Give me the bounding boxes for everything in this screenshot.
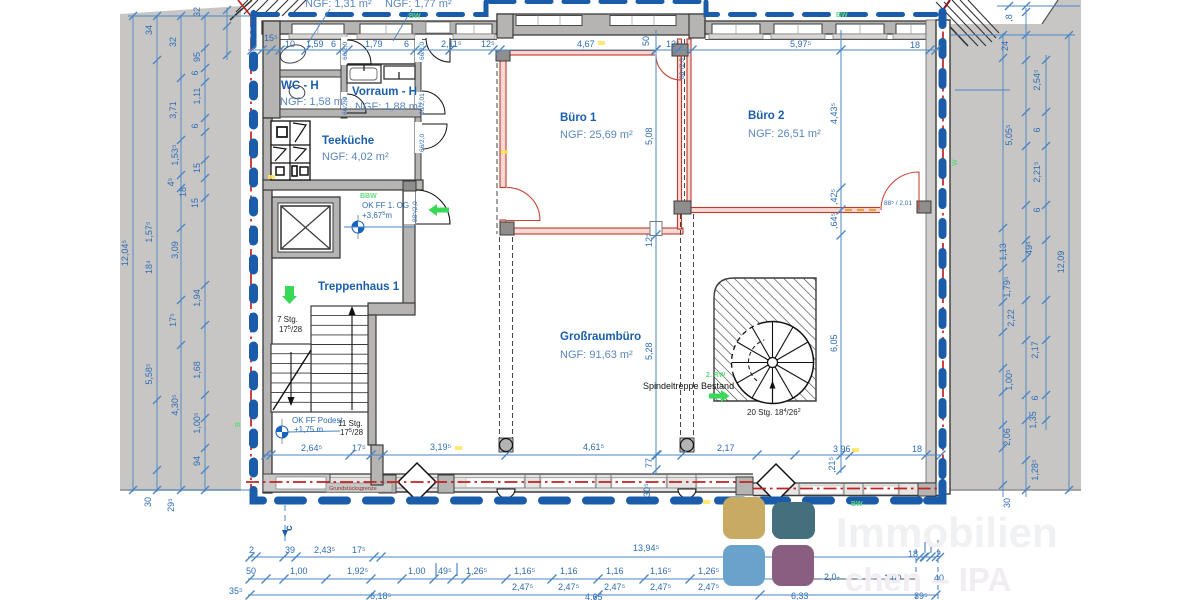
svg-text:66/2,0: 66/2,0 <box>419 42 426 60</box>
svg-text:OK FF 1. OG: OK FF 1. OG <box>362 201 409 210</box>
svg-text:NGF: 4,02 m²: NGF: 4,02 m² <box>322 151 389 163</box>
svg-text:3,09: 3,09 <box>170 241 180 259</box>
svg-text:1,00: 1,00 <box>408 566 426 576</box>
svg-text:34: 34 <box>144 25 154 35</box>
svg-text:5,28: 5,28 <box>644 342 654 360</box>
svg-text:94: 94 <box>192 456 202 466</box>
svg-text:35⁵: 35⁵ <box>229 586 243 596</box>
svg-text:W: W <box>952 159 959 166</box>
svg-text:Büro 2: Büro 2 <box>748 110 784 122</box>
svg-text:Vorraum - H: Vorraum - H <box>352 86 417 98</box>
svg-text:10: 10 <box>285 39 295 49</box>
svg-text:2. RW: 2. RW <box>706 372 726 379</box>
svg-text:NGF: 91,63 m²: NGF: 91,63 m² <box>560 349 633 361</box>
svg-text:15⁵: 15⁵ <box>264 33 278 43</box>
svg-text:OK FF Podest: OK FF Podest <box>292 416 343 425</box>
svg-text:1,00⁵: 1,00⁵ <box>192 412 202 434</box>
svg-text:88⁵/2,0: 88⁵/2,0 <box>679 58 686 79</box>
svg-text:17⁵: 17⁵ <box>168 313 178 327</box>
svg-text:1,16: 1,16 <box>560 566 578 576</box>
svg-text:Teeküche: Teeküche <box>322 135 374 147</box>
svg-text:4,67: 4,67 <box>577 39 595 49</box>
svg-text:,42⁵: ,42⁵ <box>829 188 839 205</box>
svg-text:5,05⁵: 5,05⁵ <box>1004 124 1014 146</box>
svg-text:NGF: 26,51 m²: NGF: 26,51 m² <box>748 128 821 140</box>
svg-text:Büro 1: Büro 1 <box>560 112 597 124</box>
svg-text:29⁵: 29⁵ <box>166 498 176 512</box>
svg-text:2,11⁵: 2,11⁵ <box>441 39 462 49</box>
svg-text:2: 2 <box>249 545 254 555</box>
svg-text:NGF: 25,69 m²: NGF: 25,69 m² <box>560 129 633 141</box>
svg-text:1,16⁵: 1,16⁵ <box>514 566 536 576</box>
svg-text:NGF: 1,77 m²: NGF: 1,77 m² <box>385 0 452 10</box>
svg-text:BW: BW <box>836 12 848 19</box>
svg-text:49⁵: 49⁵ <box>1024 241 1034 255</box>
svg-text:NGF: 1,58 m²: NGF: 1,58 m² <box>280 96 347 108</box>
svg-text:4,61⁵: 4,61⁵ <box>583 442 605 452</box>
svg-text:18: 18 <box>178 187 188 197</box>
svg-text:1,53⁵: 1,53⁵ <box>170 144 180 166</box>
svg-text:1,68: 1,68 <box>192 361 202 379</box>
svg-text:1,16⁵: 1,16⁵ <box>650 566 672 576</box>
svg-text:chen – IPA: chen – IPA <box>845 561 1011 598</box>
svg-text:,64⁵: ,64⁵ <box>829 212 839 229</box>
svg-text:175/28: 175/28 <box>279 325 303 334</box>
svg-text:88⁵/2,0: 88⁵/2,0 <box>412 201 419 222</box>
svg-text:2,17: 2,17 <box>717 443 735 453</box>
svg-text:BW: BW <box>851 501 863 508</box>
svg-text:3,19⁵: 3,19⁵ <box>430 442 452 452</box>
svg-text:15: 15 <box>192 163 202 173</box>
svg-text:,21⁵: ,21⁵ <box>827 456 837 473</box>
svg-text:20 Stg. 184/262: 20 Stg. 184/262 <box>747 408 801 417</box>
svg-text:13,94⁵: 13,94⁵ <box>633 543 660 553</box>
svg-text:5,58⁵: 5,58⁵ <box>144 363 154 385</box>
svg-text:12⁵: 12⁵ <box>666 39 680 49</box>
svg-text:c: c <box>284 525 295 531</box>
svg-text:1,94: 1,94 <box>192 289 202 307</box>
svg-text:32: 32 <box>192 7 202 17</box>
svg-text:12,09: 12,09 <box>1056 251 1066 274</box>
svg-text:15: 15 <box>190 198 200 208</box>
svg-text:2,47⁵: 2,47⁵ <box>650 582 672 592</box>
svg-text:6: 6 <box>1032 127 1042 132</box>
svg-text:1,00⁵: 1,00⁵ <box>1004 369 1014 391</box>
svg-text:49⁵: 49⁵ <box>438 566 452 576</box>
svg-text:2,17: 2,17 <box>1030 341 1040 359</box>
svg-text:1,11: 1,11 <box>192 88 202 105</box>
svg-text:30: 30 <box>1002 498 1012 508</box>
svg-text:WC - H: WC - H <box>281 80 319 92</box>
svg-text:1,26⁵: 1,26⁵ <box>466 566 488 576</box>
svg-text:50: 50 <box>246 566 256 576</box>
svg-text:30⁵: 30⁵ <box>642 483 652 497</box>
svg-text:66/2,0: 66/2,0 <box>342 97 349 115</box>
svg-text:5,08: 5,08 <box>644 127 654 145</box>
svg-text:3 96: 3 96 <box>833 444 851 454</box>
svg-text:B: B <box>235 422 242 427</box>
svg-text:2,54⁵: 2,54⁵ <box>1032 69 1042 91</box>
svg-text:7 Stg.: 7 Stg. <box>277 315 298 324</box>
svg-text:18⁴: 18⁴ <box>144 260 154 274</box>
svg-text:6: 6 <box>190 123 200 128</box>
svg-text:2,47⁵: 2,47⁵ <box>604 582 626 592</box>
svg-text:39: 39 <box>285 545 295 555</box>
svg-text:12,04⁵: 12,04⁵ <box>120 240 130 267</box>
svg-text:2,64⁵: 2,64⁵ <box>301 443 323 453</box>
svg-text:2,47⁵: 2,47⁵ <box>698 582 720 592</box>
svg-text:3,71: 3,71 <box>168 101 178 119</box>
svg-text:BW: BW <box>409 13 421 20</box>
svg-text:1,92⁵: 1,92⁵ <box>347 566 369 576</box>
svg-text:4,30⁵: 4,30⁵ <box>170 394 180 416</box>
svg-text:Immobilien: Immobilien <box>836 509 1058 556</box>
svg-text:NGF: 1,88 m²: NGF: 1,88 m² <box>355 101 422 113</box>
svg-text:Spindeltreppe Bestand: Spindeltreppe Bestand <box>643 381 734 391</box>
svg-text:6: 6 <box>331 39 336 49</box>
svg-text:6: 6 <box>1030 395 1040 400</box>
svg-text:BBW: BBW <box>360 193 377 200</box>
svg-text:6: 6 <box>1032 207 1042 212</box>
svg-text:2,22: 2,22 <box>1006 309 1016 327</box>
svg-text:1,00: 1,00 <box>290 566 308 576</box>
svg-text:50: 50 <box>641 36 651 46</box>
svg-text:1,35: 1,35 <box>1028 411 1038 429</box>
svg-text:6,05: 6,05 <box>829 334 839 352</box>
svg-text:12⁵: 12⁵ <box>644 233 654 247</box>
svg-text:66/2,0: 66/2,0 <box>419 134 426 152</box>
svg-text:6: 6 <box>404 39 409 49</box>
svg-text:1,79⁵: 1,79⁵ <box>1002 276 1012 298</box>
svg-text:4⁵: 4⁵ <box>166 177 176 186</box>
svg-text:175/28: 175/28 <box>340 428 364 437</box>
svg-text:12⁵: 12⁵ <box>481 39 495 49</box>
svg-text:1,79: 1,79 <box>365 39 383 49</box>
svg-text:18: 18 <box>910 40 920 50</box>
svg-text:1,13: 1,13 <box>998 243 1008 261</box>
svg-text:2,43⁵: 2,43⁵ <box>314 545 336 555</box>
svg-text:88⁵ / 2,01: 88⁵ / 2,01 <box>884 200 912 207</box>
svg-text:2,21⁵: 2,21⁵ <box>1032 161 1042 183</box>
svg-text:1,16: 1,16 <box>606 566 624 576</box>
svg-text:1,59: 1,59 <box>306 39 324 49</box>
svg-text:1,28⁵: 1,28⁵ <box>1030 459 1040 481</box>
svg-text:66/2,01: 66/2,01 <box>419 93 426 115</box>
svg-text:32: 32 <box>168 37 178 47</box>
svg-text:2,06: 2,06 <box>1002 428 1012 446</box>
svg-text:NGF: 1,31 m²: NGF: 1,31 m² <box>305 0 372 10</box>
svg-text:2,47⁵: 2,47⁵ <box>512 582 534 592</box>
svg-text:+1,75 m: +1,75 m <box>294 425 323 434</box>
svg-text:Grundstücksgrenze: Grundstücksgrenze <box>329 486 377 492</box>
svg-text:17⁵: 17⁵ <box>352 545 366 555</box>
svg-text:+3,675m: +3,675m <box>362 211 392 220</box>
svg-text:6: 6 <box>190 70 200 75</box>
svg-text:Großraumbüro: Großraumbüro <box>560 331 641 343</box>
svg-text:Treppenhaus 1: Treppenhaus 1 <box>318 281 400 293</box>
svg-text:17⁵: 17⁵ <box>352 443 366 453</box>
svg-text:1,57⁵: 1,57⁵ <box>144 221 154 243</box>
svg-text:24: 24 <box>1000 41 1010 51</box>
svg-text:2,47⁵: 2,47⁵ <box>558 582 580 592</box>
svg-text:5,97⁵: 5,97⁵ <box>790 39 812 49</box>
svg-text:18: 18 <box>912 444 922 454</box>
svg-text:95: 95 <box>192 52 202 62</box>
svg-text:4,43⁵: 4,43⁵ <box>829 102 839 124</box>
svg-text:1,26⁵: 1,26⁵ <box>698 566 720 576</box>
svg-text:30: 30 <box>143 497 153 507</box>
svg-text:,8: ,8 <box>1004 14 1014 22</box>
